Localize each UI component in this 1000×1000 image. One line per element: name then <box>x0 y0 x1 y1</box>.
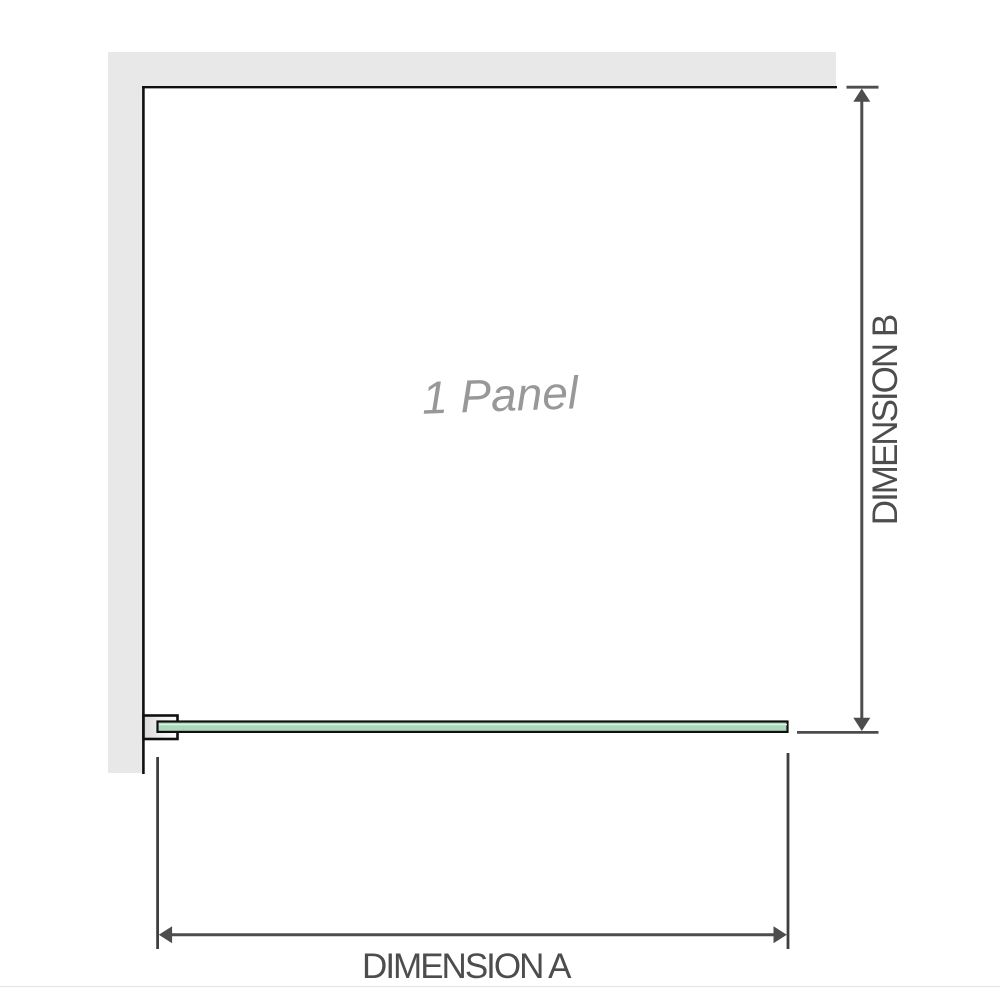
svg-text:DIMENSION B: DIMENSION B <box>866 315 905 525</box>
svg-text:DIMENSION A: DIMENSION A <box>362 947 572 986</box>
svg-text:1 Panel: 1 Panel <box>421 366 581 423</box>
